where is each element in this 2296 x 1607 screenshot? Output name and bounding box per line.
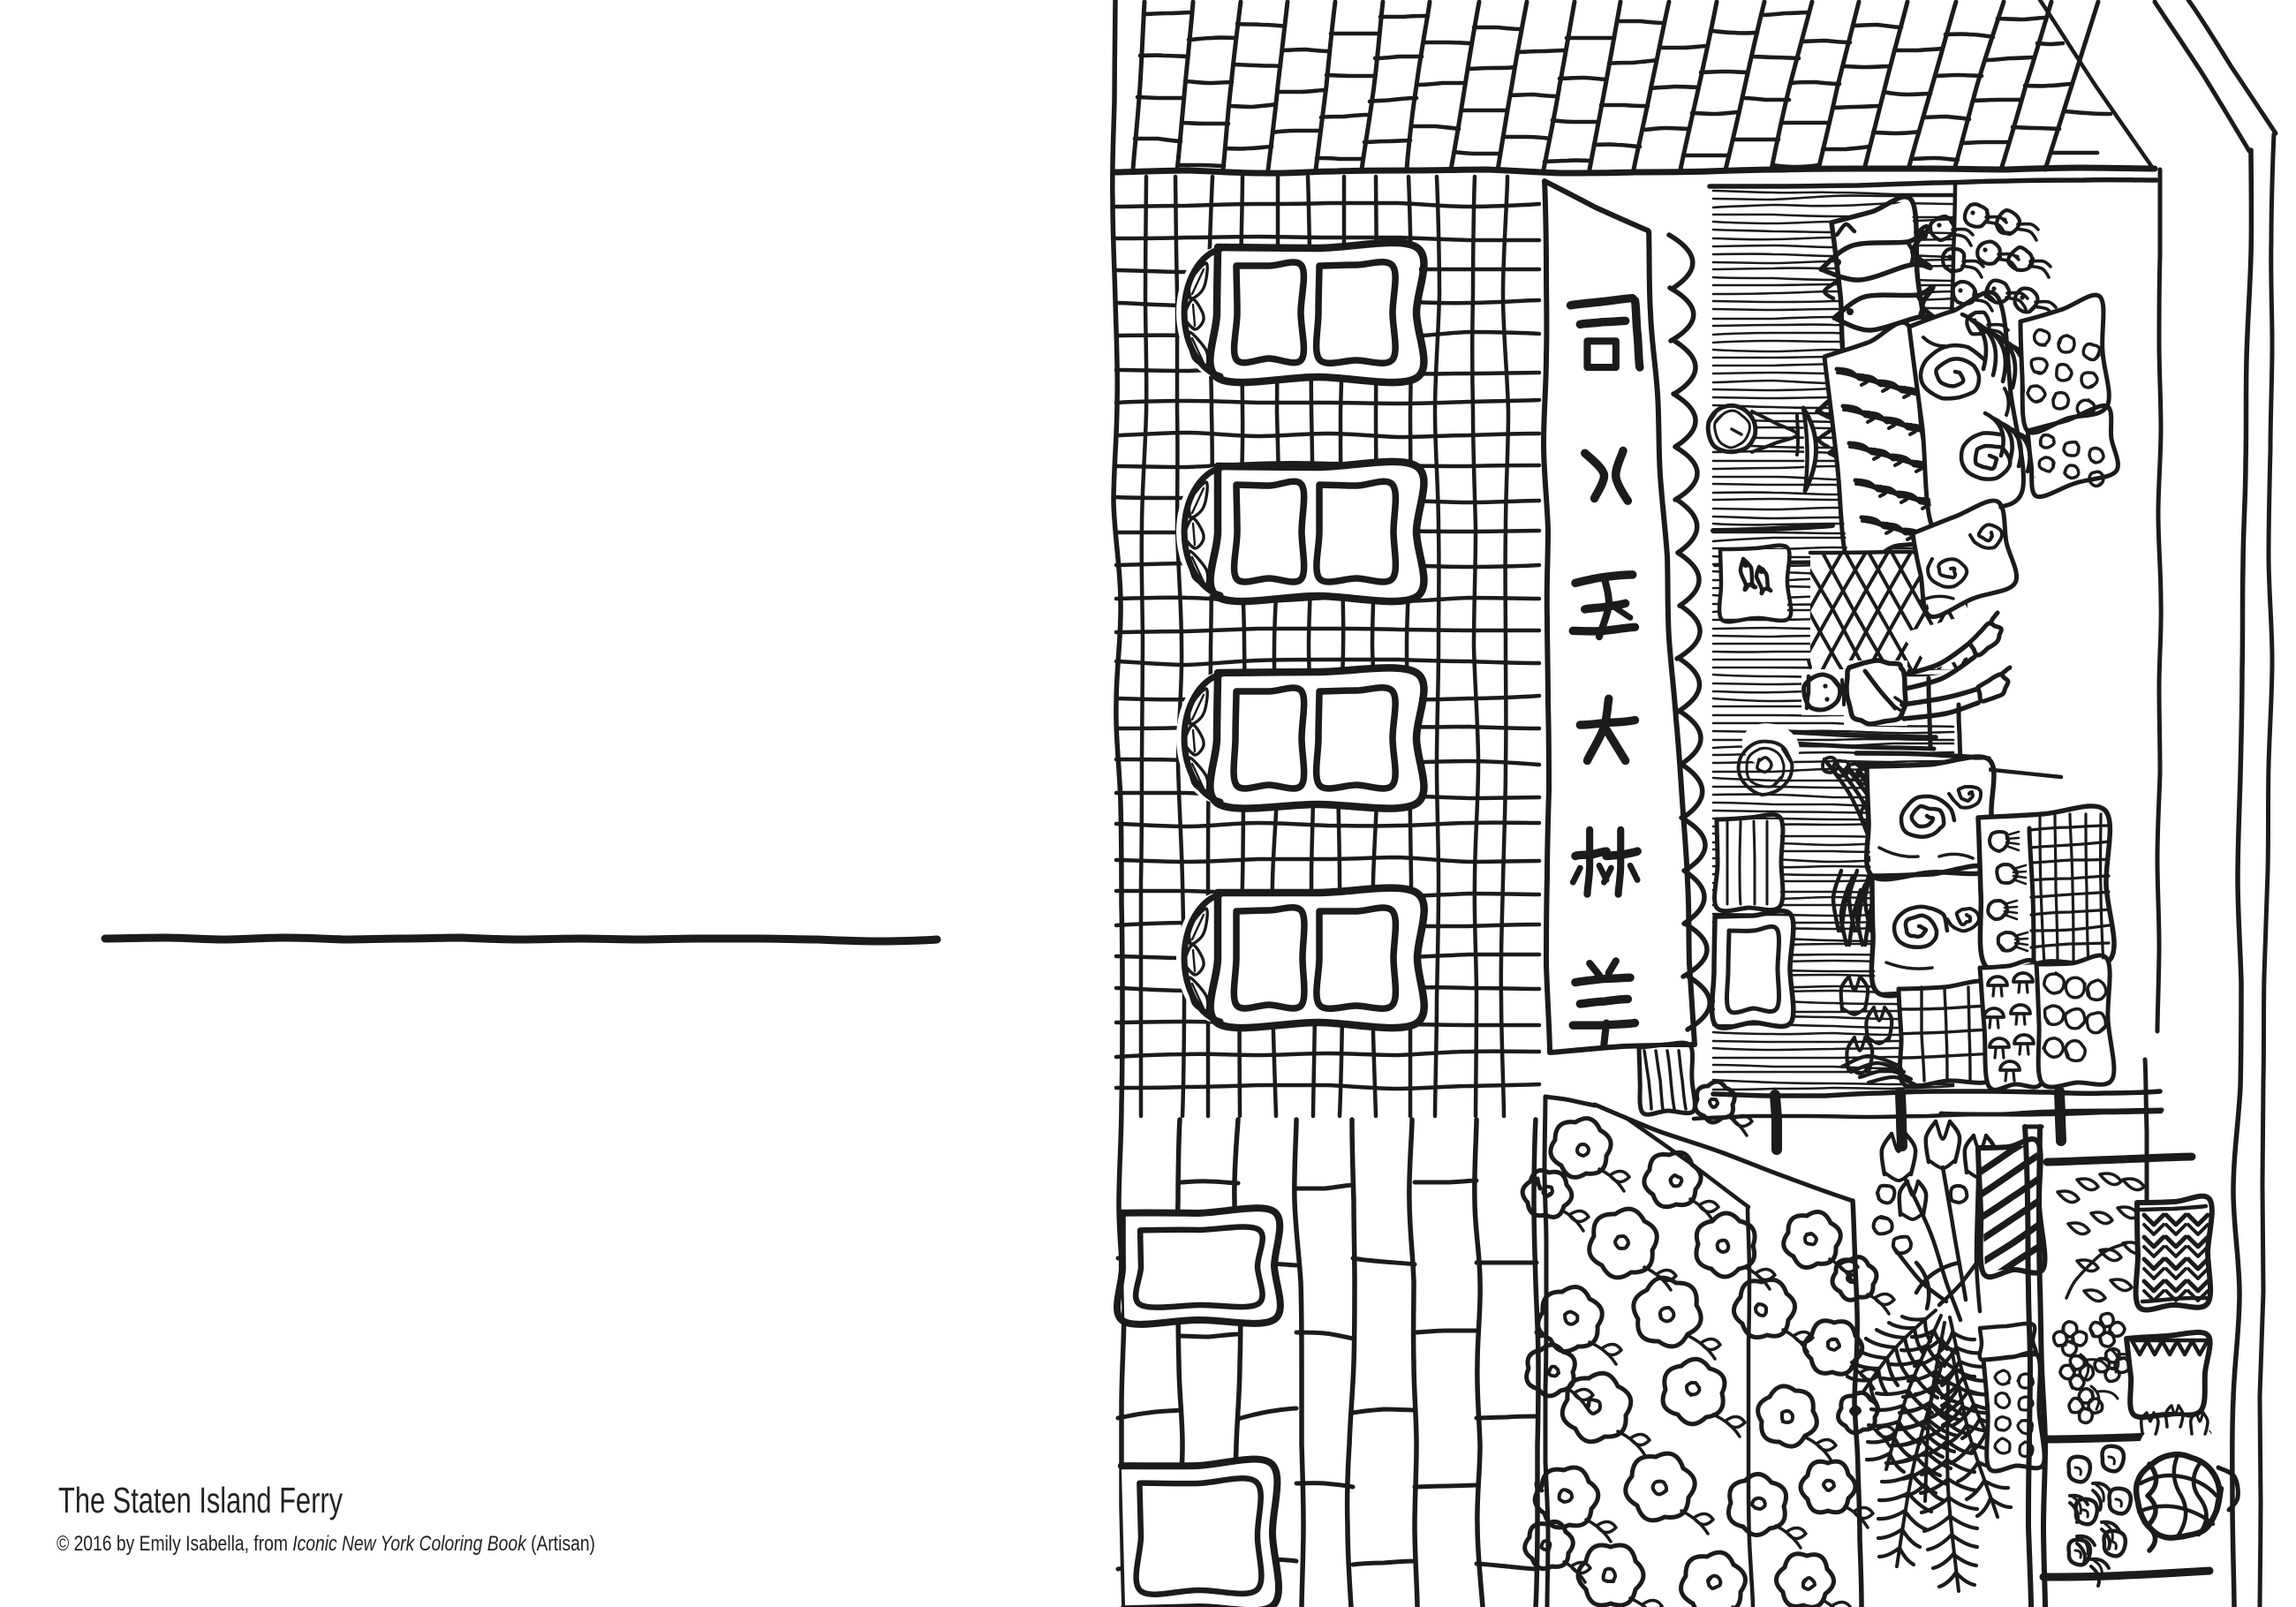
svg-text:The Staten Island Ferry: The Staten Island Ferry xyxy=(58,1480,343,1520)
svg-text:© 2016 by Emily Isabella, from: © 2016 by Emily Isabella, from Iconic Ne… xyxy=(57,1532,595,1556)
